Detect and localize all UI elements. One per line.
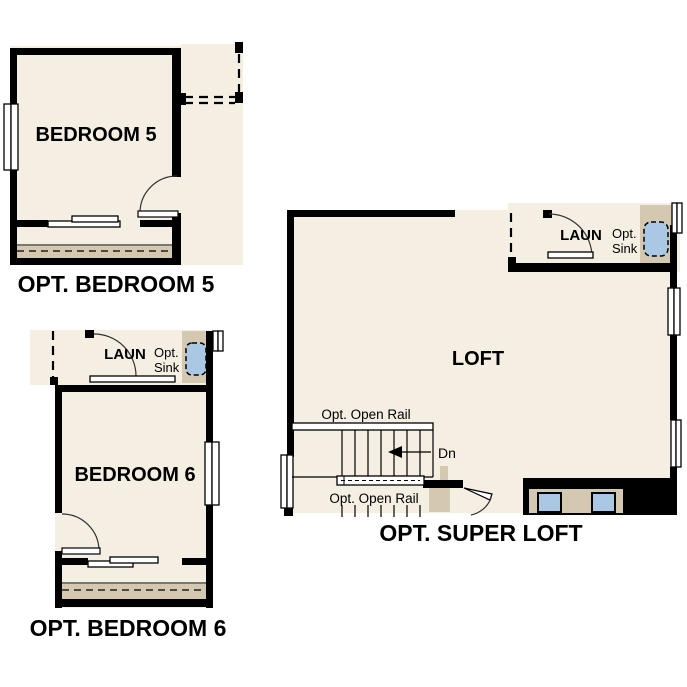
floorplan-drawing: BEDROOM 5 OPT. BEDROOM 5 [0, 0, 687, 687]
opt-sink-label-line2: Sink [154, 360, 180, 375]
loft-window [676, 420, 681, 467]
bedroom5-window [4, 104, 11, 170]
closet-bypass-door [110, 557, 158, 563]
door-leaf [138, 211, 178, 217]
closet-shelf-band [62, 584, 206, 599]
opt-sink-label-line2: Sink [612, 241, 638, 256]
wall [670, 225, 677, 288]
wall [140, 220, 173, 227]
appliance-icon [592, 493, 615, 512]
plan-title-bedroom6: OPT. BEDROOM 6 [30, 615, 227, 641]
room-label-bedroom6: BEDROOM 6 [74, 464, 195, 486]
opt-sink-label-line1: Opt. [612, 226, 637, 241]
plan-opt-bedroom6: LAUN Opt. Sink BEDROOM 6 OPT. BEDROOM 6 [30, 330, 227, 641]
plan-opt-bedroom5: BEDROOM 5 OPT. BEDROOM 5 [4, 42, 243, 297]
open-rail-label-top: Opt. Open Rail [321, 407, 410, 422]
loft-window [671, 420, 676, 467]
bedroom5-window [11, 104, 18, 170]
wall [287, 210, 294, 457]
closet-shelf-band [17, 246, 172, 258]
open-rail [292, 423, 433, 430]
door-hinge-jamb [85, 330, 94, 338]
bedroom5-floor [10, 46, 181, 265]
room-label-bedroom5: BEDROOM 5 [35, 124, 156, 146]
opt-sink-label-line1: Opt. [154, 345, 179, 360]
room-label-loft: LOFT [452, 348, 504, 370]
sink-icon [644, 222, 668, 256]
laundry-label: LAUN [104, 346, 146, 363]
wall [508, 263, 677, 272]
wall [287, 210, 455, 217]
wall [423, 480, 463, 488]
sink-icon [186, 343, 206, 375]
wall [62, 558, 88, 565]
wall [10, 48, 181, 55]
wall [55, 392, 62, 513]
loft-window [668, 288, 674, 335]
down-label: Dn [438, 445, 456, 461]
appliance-icon [538, 493, 561, 512]
laundry-shelf [548, 252, 593, 258]
wall [55, 599, 213, 607]
loft-window [677, 203, 682, 233]
loft-window [672, 203, 677, 233]
bedroom6-window [218, 331, 223, 351]
opening-jamb [235, 92, 243, 103]
loft-window [287, 455, 293, 508]
bedroom6-window [205, 442, 212, 505]
opening-jamb [235, 42, 243, 53]
laundry-shelf [90, 376, 175, 382]
opening-jamb [508, 257, 516, 264]
bedroom6-window [212, 442, 219, 505]
plan-title-super-loft: OPT. SUPER LOFT [379, 520, 582, 546]
wall [172, 48, 181, 177]
wall [670, 335, 677, 420]
wall [206, 505, 213, 608]
plan-opt-super-loft: Opt. Open Rail Dn Opt. Open Rail LOFT LA… [281, 203, 682, 546]
wall [10, 258, 181, 265]
opening-jamb [50, 377, 58, 385]
wall [172, 213, 181, 265]
loft-window [281, 455, 287, 508]
floorplan-sheet: BEDROOM 5 OPT. BEDROOM 5 [0, 0, 687, 687]
wall [182, 558, 206, 565]
open-rail-label-bottom: Opt. Open Rail [329, 491, 418, 506]
laundry-label: LAUN [560, 227, 602, 244]
wall [55, 385, 213, 392]
bedroom6-window [213, 331, 218, 351]
chase [440, 466, 448, 480]
chase [429, 488, 450, 512]
bedroom6-floor [55, 385, 213, 608]
loft-window [674, 288, 680, 335]
plan-title-bedroom5: OPT. BEDROOM 5 [18, 271, 215, 297]
wall [206, 331, 213, 442]
door-leaf [62, 548, 100, 554]
closet-bypass-door [72, 216, 118, 222]
wall [17, 220, 48, 227]
bedroom5-hall-floor [181, 44, 243, 265]
